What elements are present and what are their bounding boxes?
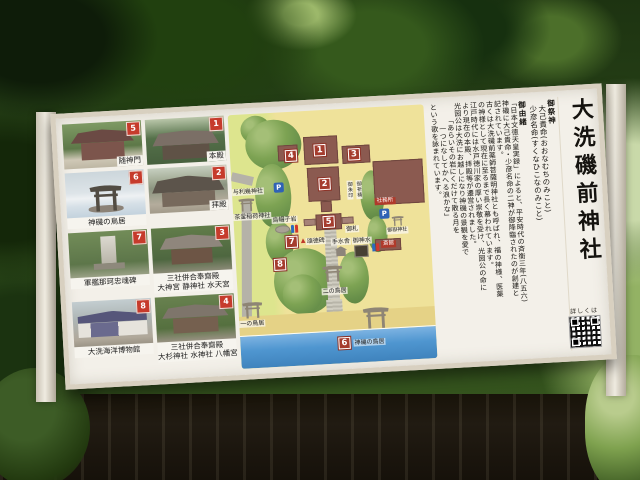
building-corridor-east — [341, 216, 353, 224]
map-label-nino-torii: 二の鳥居 — [321, 287, 347, 295]
qr-code — [568, 315, 602, 349]
hall-body-shape — [162, 190, 216, 206]
map-marker-4: 4 — [285, 150, 298, 163]
map-label-mitake-jinja: 御嶽神社 — [386, 226, 408, 234]
nino-torii-icon — [322, 261, 343, 286]
shrine-body-shape — [173, 316, 218, 334]
map-marker-2: 2 — [318, 178, 331, 191]
photo-number-badge: 3 — [215, 225, 230, 240]
torii-icon — [392, 216, 405, 227]
map-label-shamusho: 社務所 — [374, 197, 395, 205]
toilet-icon-west — [291, 225, 298, 233]
map-marker-3: 3 — [348, 148, 361, 161]
qr-section: 詳しくは — [566, 305, 604, 349]
torii-silhouette-icon — [89, 184, 122, 212]
pedestal-shape — [93, 262, 125, 271]
map-marker-1: 1 — [313, 144, 326, 157]
qr-finder-icon — [571, 318, 579, 326]
map-label-chozuya: 手水舎 — [331, 238, 351, 246]
parking-icon-east: P — [379, 208, 390, 219]
building-haiden-porch — [321, 201, 333, 213]
photo-hosaiden-east: 3 三社併合奉齋殿 大神宮 静神社 水天宮 — [151, 224, 234, 293]
photo-monument: 7 軍艦那珂忠魂碑 — [68, 229, 151, 298]
photo-zuijinmon: 随神門 5 — [62, 120, 143, 169]
map-marker-5: 5 — [322, 216, 335, 229]
photo-column: 随神門 5 本殿 1 6 神磯の鳥居 — [62, 116, 238, 379]
shrine-info-board: 随神門 5 本殿 1 6 神磯の鳥居 — [50, 83, 617, 389]
history-section: 御由緒 「日本文徳天皇実録」によると、平安時代の斉衡三年(八五六) 神磯に大己貴… — [429, 99, 540, 358]
qr-finder-icon — [572, 338, 580, 346]
photo-number-badge: 2 — [211, 166, 226, 181]
info-panel: 大洗磯前神社 御祭神 大己貴命(おおなむちのみこと) 少彦名命(すくなひこなのみ… — [427, 95, 605, 358]
photo-caption: 本殿 — [207, 150, 227, 161]
photo-number-badge: 6 — [129, 170, 144, 185]
photo-scene: 随神門 5 本殿 1 6 神磯の鳥居 — [0, 0, 640, 480]
photo-haiden: 拝殿 2 — [147, 164, 229, 224]
photo-caption: 随神門 — [116, 155, 143, 166]
map-marker-6: 6 — [338, 337, 351, 350]
torii-icon — [238, 198, 255, 212]
precinct-map: 与利幾神社 茶釜稲荷神社 烏帽子岩 P P 4 1 3 2 5 7 8 ▲ 頌徳… — [228, 104, 438, 369]
shrine-body-shape — [171, 247, 213, 265]
qr-finder-icon — [590, 317, 598, 325]
wood-fence — [0, 394, 640, 480]
photo-number-badge: 7 — [132, 230, 147, 245]
building-corridor-west — [304, 219, 316, 227]
map-road — [230, 172, 253, 186]
map-label-gokito: 御祈祷 — [355, 180, 362, 199]
map-label-goshinsui: 御神水 — [352, 236, 372, 244]
map-label-ichino-torii: 一の鳥居 — [239, 320, 265, 328]
map-label-shotokuhi: 頌徳碑 — [306, 237, 326, 245]
photo-number-badge: 4 — [219, 294, 234, 309]
photo-honden: 本殿 1 — [145, 116, 226, 165]
obelisk-shape — [101, 235, 117, 264]
map-label-ofuda: 御札 — [345, 225, 359, 233]
map-marker-7: 7 — [285, 236, 298, 249]
hall-body-shape — [162, 143, 210, 159]
map-label-goshuin: 御朱印 — [346, 180, 353, 199]
ichino-torii-icon — [242, 302, 263, 319]
map-label-saikan: 斎館 — [381, 240, 396, 248]
museum-body-shape — [78, 320, 148, 338]
photo-hosaiden-west: 4 三社併合奉齋殿 大杉神社 水神社 八幡宮 — [155, 293, 238, 362]
parking-icon-west: P — [273, 182, 284, 193]
photo-museum: 8 大洗海洋博物館 — [72, 298, 155, 367]
map-label-eboshi-iwa: 烏帽子岩 — [271, 216, 297, 224]
photo-caption: 拝殿 — [209, 199, 229, 210]
photo-kamiiso-torii: 6 神磯の鳥居 — [65, 169, 147, 229]
toilet-icon-east — [372, 243, 379, 251]
photo-number-badge: 5 — [126, 121, 141, 136]
goshinsui-icon — [354, 245, 369, 258]
map-stairs — [326, 299, 343, 312]
photo-number-badge: 1 — [209, 117, 224, 132]
kamiiso-torii-icon — [363, 307, 390, 329]
photo-number-badge: 8 — [136, 299, 151, 314]
map-marker-8: 8 — [274, 258, 287, 271]
